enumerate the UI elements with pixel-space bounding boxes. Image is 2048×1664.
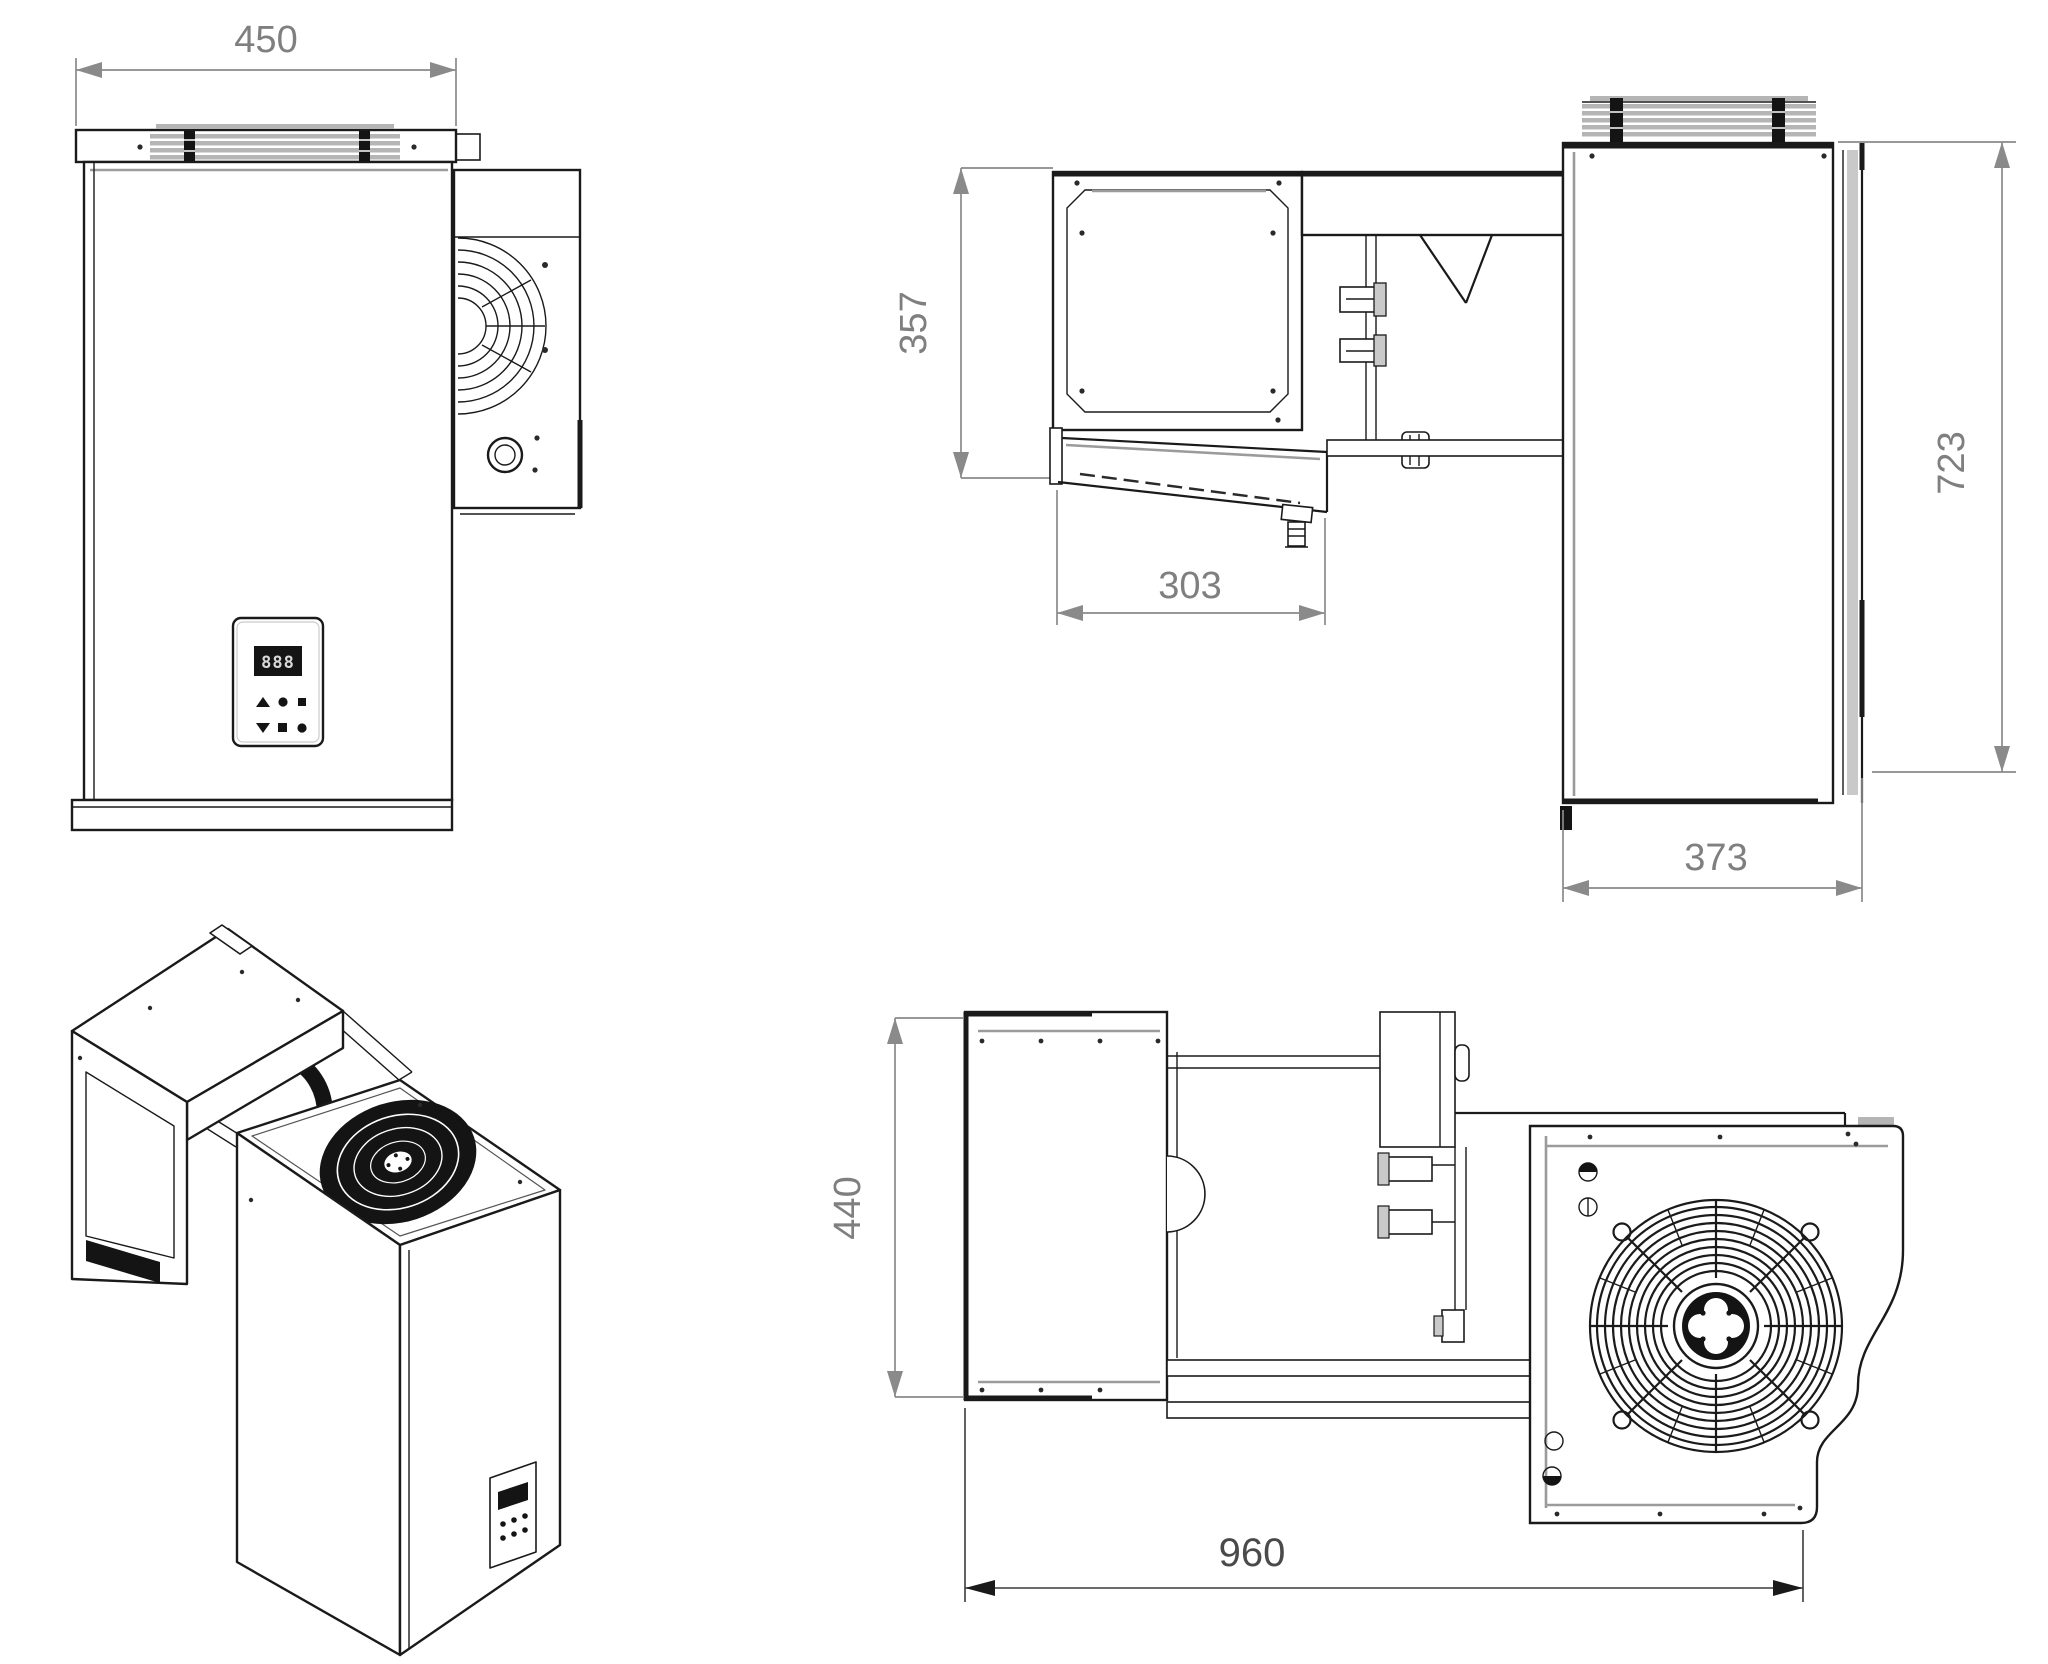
dim-evaporator-height-label: 357 xyxy=(893,291,935,354)
front-side-condenser xyxy=(454,170,580,514)
dimension-723: 723 xyxy=(1838,142,2016,772)
top-view: 440 xyxy=(827,1012,1903,1602)
condenser-box-side xyxy=(1560,96,1862,830)
dim-overall-length-label: 960 xyxy=(1219,1531,1286,1575)
condenser-top-grille xyxy=(1582,96,1816,145)
drain-fitting-icon xyxy=(1281,504,1312,547)
iso-condenser-box xyxy=(237,1080,560,1655)
light-button[interactable] xyxy=(297,723,306,732)
refrigerant-pipes-icon xyxy=(1378,1153,1455,1238)
dim-condenser-height-label: 723 xyxy=(1931,431,1973,494)
temperature-display-digits: 888 xyxy=(261,653,295,673)
terminal-box-top xyxy=(1380,1012,1455,1147)
standby-button[interactable] xyxy=(278,723,287,732)
isometric-view xyxy=(72,925,560,1655)
foot xyxy=(1560,806,1572,830)
fan-hub-icon xyxy=(1674,1284,1758,1368)
dimension-357: 357 xyxy=(893,168,1058,478)
drain-stub-icon xyxy=(1434,1310,1464,1342)
dimension-450: 450 xyxy=(76,19,456,126)
dimension-440: 440 xyxy=(827,1018,963,1397)
refrigerant-pipes-icon xyxy=(1340,283,1386,366)
aux-button[interactable] xyxy=(298,698,306,706)
service-port-icon xyxy=(488,438,522,472)
set-button[interactable] xyxy=(278,697,287,706)
controller-panel: 888 xyxy=(233,618,323,746)
lower-rail xyxy=(1327,440,1563,456)
evaporator-box-side xyxy=(1053,172,1302,430)
axial-fan-grille-icon xyxy=(1590,1200,1842,1452)
front-view: 450 xyxy=(72,19,580,830)
front-top-cap xyxy=(76,124,456,162)
wall-bracket-side xyxy=(1302,172,1563,468)
dim-front-width-label: 450 xyxy=(234,19,297,61)
wall-bracket-top xyxy=(1167,1012,1535,1418)
side-view: 357 xyxy=(893,96,2016,902)
evaporator-box-top xyxy=(965,1012,1205,1400)
drip-tray xyxy=(1050,428,1327,547)
front-base xyxy=(72,800,452,830)
dim-condenser-depth-label: 373 xyxy=(1684,837,1747,879)
dim-evaporator-depth-label: 303 xyxy=(1158,565,1221,607)
condenser-panel-top xyxy=(1455,1113,1903,1523)
iso-controller-panel xyxy=(490,1462,536,1568)
dim-unit-width-label: 440 xyxy=(827,1176,869,1239)
technical-drawing-canvas: 450 xyxy=(0,0,2048,1664)
drawing-sheet: 450 xyxy=(0,0,2048,1664)
